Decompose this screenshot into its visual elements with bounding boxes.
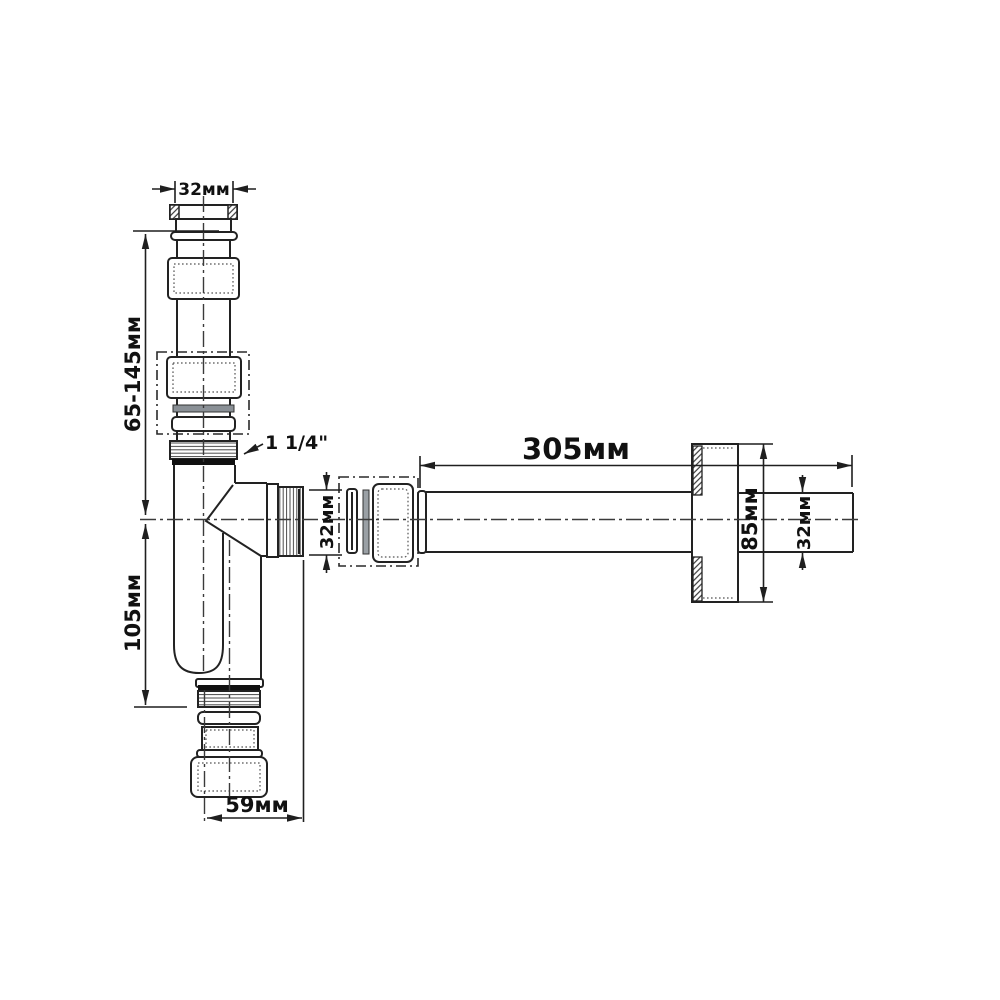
- escutcheon-hatch-bottom: [693, 557, 702, 601]
- dim-label-thread-size: 1 1/4": [265, 432, 328, 454]
- dim-label-top-diameter: 32мм: [178, 180, 229, 200]
- dimension-thread-size: 1 1/4": [244, 432, 328, 454]
- dimension-escutcheon-diameter: 85мм: [738, 444, 773, 602]
- dim-label-body-height: 105мм: [121, 574, 145, 652]
- branch-cone: [206, 485, 261, 556]
- dim-label-outlet-pipe-diameter: 32мм: [794, 496, 815, 550]
- outlet-pipe-assembly: [339, 477, 692, 566]
- siphon-technical-drawing: 32мм 65-145мм 105мм 1 1/4" 32мм 305мм 85…: [0, 0, 1000, 1000]
- flat-washer: [363, 490, 369, 554]
- outlet-pipe-left: [426, 492, 692, 552]
- dim-label-escutcheon-diameter: 85мм: [738, 487, 762, 551]
- branch-flange: [267, 484, 278, 557]
- dimension-top-diameter: 32мм: [152, 180, 256, 203]
- pipe-end-ring: [418, 491, 426, 553]
- dimension-outlet-connection-diameter: 32мм: [309, 472, 342, 573]
- dimension-outlet-length: 305мм: [420, 432, 852, 488]
- dim-label-bottom-offset: 59мм: [225, 793, 289, 817]
- ext-lines: [420, 455, 852, 488]
- escutcheon-hatch-top: [693, 446, 702, 495]
- wall-escutcheon: [692, 444, 853, 602]
- dim-label-outlet-length: 305мм: [522, 432, 630, 466]
- dimension-outlet-pipe-diameter: 32мм: [794, 475, 815, 570]
- dim-label-adjustable-height: 65-145мм: [121, 316, 145, 432]
- inner-tube-u-bottom: [174, 533, 223, 673]
- coupling-nut: [373, 484, 413, 562]
- side-branch-outlet: [267, 484, 303, 557]
- inlet-cap-knurl-right: [228, 205, 237, 219]
- dimension-body-height: 105мм: [121, 524, 187, 707]
- tee-body: [174, 465, 267, 679]
- drawing-canvas: 32мм 65-145мм 105мм 1 1/4" 32мм 305мм 85…: [0, 0, 1000, 1000]
- inlet-cap-knurl-left: [170, 205, 179, 219]
- leader-arrow: [244, 444, 263, 454]
- dim-label-outlet-connection-diameter: 32мм: [317, 495, 338, 549]
